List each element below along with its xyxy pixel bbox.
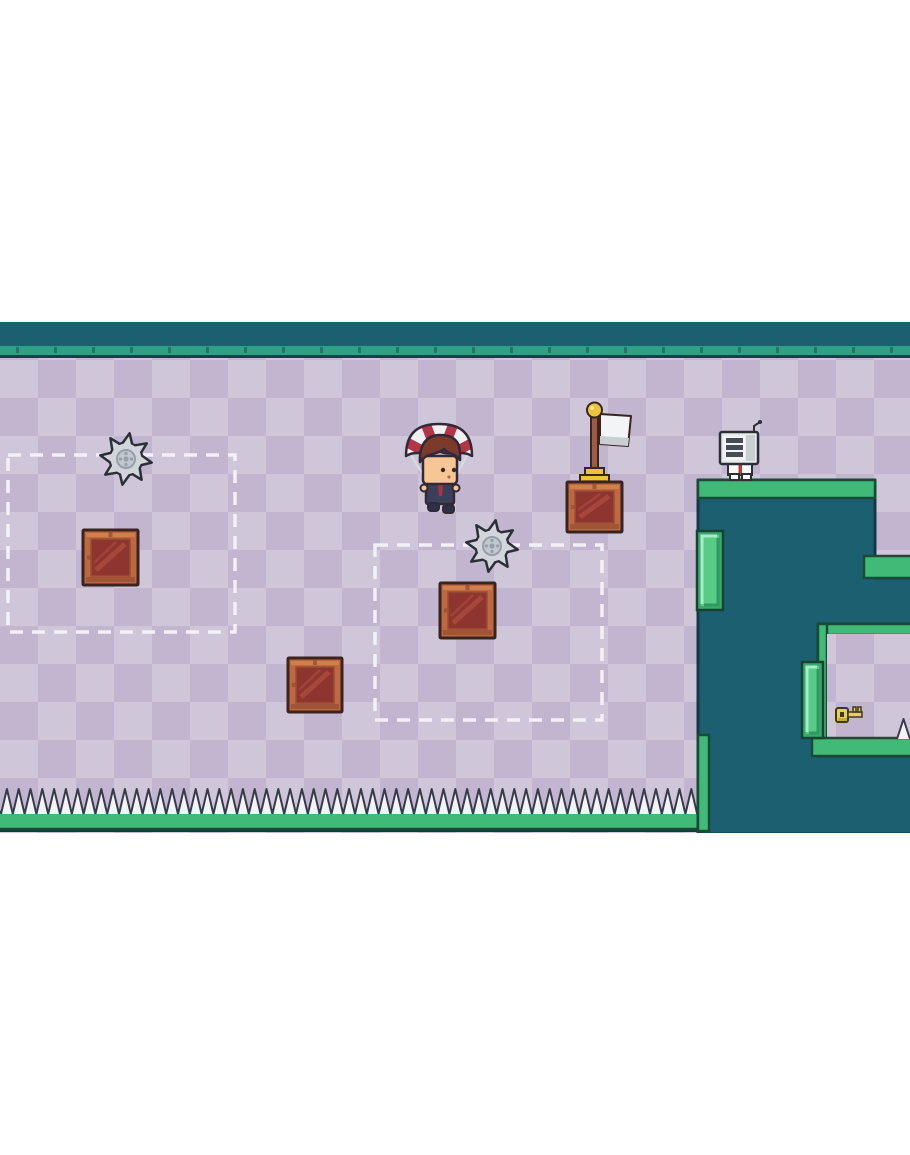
trim-bolt-tick [206,347,209,353]
crate-plank-notch [444,609,449,613]
saw-hub-bolt [119,457,122,460]
player-hand [453,485,460,492]
trim-bolt-tick [130,347,133,353]
trim-bolt-tick [624,347,627,353]
key-tooth [853,707,856,712]
saw-hub-bolt [496,544,499,547]
robot-foot [742,474,751,480]
trim-bolt-tick [814,347,817,353]
crate-frame-shadow [570,524,619,529]
key-tooth [858,707,861,712]
crate-plank-notch [292,683,297,687]
saw-hub-bolt [490,539,493,542]
crate-plank-notch [466,585,470,590]
trim-bolt-tick [738,347,741,353]
wall-left-trim [698,735,709,831]
flag-pole [591,412,598,470]
trim-bolt-tick [700,347,703,353]
robot-screen-bar [726,452,743,457]
trim-bolt-tick [434,347,437,353]
crate [288,658,342,712]
platform-top [698,480,875,498]
page-background: Pixel platformer level: parachuting char… [0,0,910,1155]
crate-frame-shadow [443,630,492,635]
player-mouth [447,475,450,478]
crate-frame-shadow [86,577,135,582]
crate-frame-shadow [291,704,339,709]
crate [83,530,138,585]
notch-ledge [864,556,910,578]
trim-bolt-tick [776,347,779,353]
trim-bolt-tick [472,347,475,353]
mint-ledge-face [701,535,719,606]
trim-bolt-tick [662,347,665,353]
robot-screen-bar [726,445,743,450]
crate-plank-notch [87,556,92,560]
robot-head-side [746,435,755,461]
saw-hub-bolt [490,550,493,553]
game-stage[interactable]: Pixel platformer level: parachuting char… [0,322,910,833]
robot-foot [730,474,739,480]
robot-screen-bar [726,438,743,443]
saw-hub-bolt [130,457,133,460]
trim-bolt-tick [396,347,399,353]
crate-plank-notch [313,660,317,665]
saw-hub-hole [489,543,494,548]
key-bow-shade [838,718,847,721]
crate-plank-notch [109,532,113,537]
saw-hub-bolt [485,544,488,547]
trim-bolt-tick [586,347,589,353]
player-hand [421,485,428,492]
saw-hub-bolt [124,463,127,466]
trim-bolt-tick [282,347,285,353]
flag-finial-highlight [590,406,594,410]
trim-bolt-tick [92,347,95,353]
trim-bolt-tick [168,347,171,353]
key-bow-hole [840,712,844,717]
crate-plank-notch [571,505,576,509]
trim-bolt-tick [320,347,323,353]
crate-plank-notch [593,484,597,489]
trim-bolt-tick [54,347,57,353]
room-ceiling [818,624,910,635]
trim-bolt-tick [16,347,19,353]
trim-bolt-tick [548,347,551,353]
player-foot [428,503,439,511]
trim-bolt-tick [510,347,513,353]
trim-bolt-tick [890,347,893,353]
flag-crate [567,482,622,532]
player-foot [443,505,454,513]
floor [0,812,709,829]
ceiling [0,322,910,346]
trim-bolt-tick [358,347,361,353]
player-eye [441,468,445,472]
ceiling-trim-outline [0,355,910,358]
saw-hub-bolt [124,452,127,455]
flag-finial-ball [587,403,602,418]
player-eye [452,468,456,472]
ceiling-trim [0,346,910,356]
trim-bolt-tick [244,347,247,353]
saw-hub-hole [123,456,128,461]
mint-ledge [697,531,723,610]
room-floor [812,738,910,756]
trim-bolt-tick [852,347,855,353]
robot-antenna-tip [758,420,762,424]
mint-ledge [802,662,823,738]
crate [440,583,495,638]
